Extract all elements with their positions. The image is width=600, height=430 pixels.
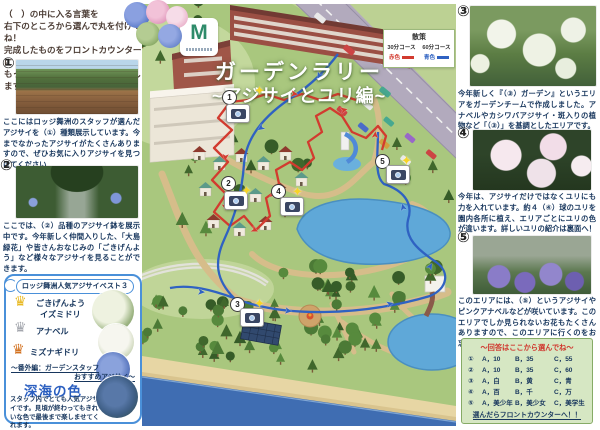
section-4-number: ④ [457, 126, 470, 141]
answer-rows: ①A，10B，35C，55 ②A，10B，35C，60 ③A，白B，黄C，青 ④… [468, 354, 588, 409]
gold-crown-icon: ♛ [14, 294, 27, 308]
rank2-name: アナベル [36, 325, 69, 337]
rank1-name2: イズミドリ [40, 308, 81, 320]
section-1-number: ① [2, 56, 15, 71]
answer-row-2: ②A，10B，35C，60 [468, 365, 588, 376]
photo-terrace-garden [16, 60, 138, 114]
legend-red-label: 赤色 [389, 53, 414, 61]
park-map: ガーデンラリー ~アジサイとユリ編~ M 散策 30分コース 60分コース 赤色… [142, 4, 456, 426]
legend-title: 散策 [384, 32, 454, 42]
sparkle-icon: ✦ [241, 184, 252, 197]
camera-icon [280, 197, 304, 216]
extra-variety-text: スタッフ内でとても人気アジサイです。見頃が終わってもきれいな色で最後まで楽しませ… [10, 396, 100, 430]
blue-route-arrow-icon: ➤ [283, 306, 293, 317]
red-route-arrow-icon: ➤ [289, 89, 299, 100]
flyer-page: （ ）の中に入る言葉を 右下のところから選んで丸を付けてね！ 完成したものをフロ… [0, 0, 600, 430]
map-marker-2: 2 [221, 176, 236, 191]
red-route-arrow-icon: ➤ [339, 105, 349, 117]
flower-heart-bouquet [120, 0, 198, 58]
section-4-text: 今年は、アジサイだけではなくユリにも力を入れています。約４（④）球のユリを園内各… [458, 192, 596, 235]
green-leaves-ball [136, 22, 160, 46]
photo-white-garden [470, 6, 596, 86]
section-3-text: 今年新しく『（③）ガーデン』というエリアをガーデンチームで作成しました。アナベル… [458, 89, 596, 132]
red-route-arrow-icon: ➤ [371, 130, 382, 139]
answer-box-title: ～回答はここから選んでね～ [462, 343, 592, 353]
map-title-line2: ~アジサイとユリ編~ [142, 82, 456, 108]
photo-lilies [473, 130, 591, 190]
answer-box-footer: 選んだらフロントカウンターへ！！ [462, 409, 592, 419]
answer-row-4: ④A，百B，千C，万 [468, 387, 588, 398]
blue-route-arrow-icon: ➤ [197, 288, 206, 299]
silver-crown-icon: ♛ [14, 320, 27, 334]
red-route-arrow-icon: ➤ [219, 152, 230, 161]
sparkle-icon: ✦ [254, 84, 265, 97]
legend-course-60: 60分コース [422, 43, 450, 51]
photo-purple-hydrangea [473, 236, 591, 294]
map-marker-1: 1 [222, 90, 237, 105]
sparkle-icon: ✦ [401, 154, 412, 167]
blue-route-swatch [437, 56, 449, 59]
section-2-text: ここでは、（②）品種のアジサイ鉢を展示中です。今年新しく仲間入りした、「大島緑花… [3, 221, 140, 275]
legend-course-30: 30分コース [387, 43, 415, 51]
section-2-number: ② [0, 158, 13, 173]
blue-hydrangea-ball [158, 24, 182, 48]
sparkle-icon: ✦ [254, 297, 265, 310]
camera-icon [226, 104, 250, 123]
answer-choices-box: ～回答はここから選んでね～ ①A，10B，35C，55 ②A，10B，35C，6… [461, 338, 593, 424]
photo-hydrangea-path [16, 166, 138, 218]
answer-row-1: ①A，10B，35C，55 [468, 354, 588, 365]
answer-row-3: ③A，白B，黄C，青 [468, 376, 588, 387]
best3-box: ロッジ舞洲人気アジサイベスト３ ♛ ごきげんよう イズミドリ ♛ アナベル ♛ … [4, 274, 142, 424]
red-route-swatch [402, 56, 414, 59]
bronze-crown-icon: ♛ [12, 342, 25, 356]
section-5-number: ⑤ [457, 230, 470, 245]
answer-row-5: ⑤A，美少年B，美少女C，美学生 [468, 398, 588, 409]
course-legend: 散策 30分コース 60分コース 赤色 青色 [383, 29, 455, 68]
section-1-text: ここにはロッジ舞洲のスタッフが選んだアジサイを（①）種類展示しています。今までな… [3, 117, 140, 171]
rank3-name: ミズナギドリ [30, 346, 79, 358]
photo-shinkai [96, 376, 138, 418]
sparkle-icon: ✦ [292, 185, 303, 198]
section-3-number: ③ [457, 4, 470, 19]
legend-blue-label: 青色 [424, 53, 449, 61]
